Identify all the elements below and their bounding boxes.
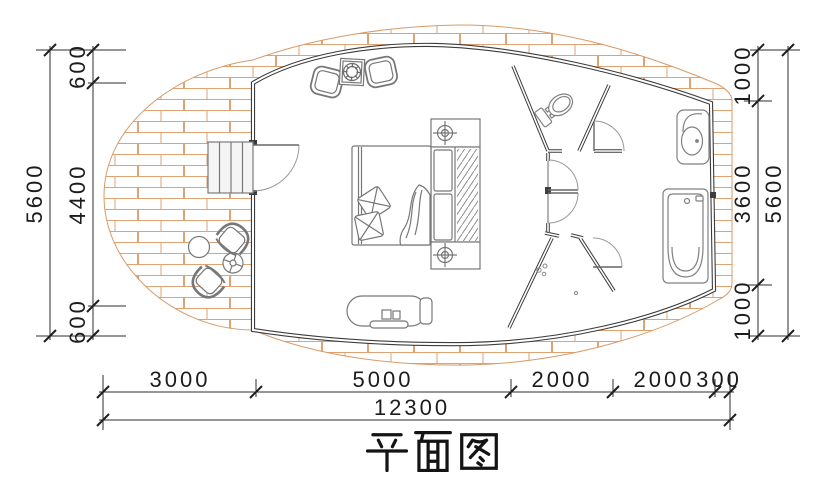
dim-bottom-seg-1: 5000 [353,367,414,392]
entry-steps [208,142,253,193]
dim-left-overall: 5600 [22,163,47,224]
title-glyph-ping [368,435,407,471]
dim-bottom-seg-0: 3000 [150,367,211,392]
dim-right-seg-2: 1000 [730,280,755,341]
bathtub [663,189,708,283]
floor-plan-page: 平面图 [0,0,837,496]
dim-left-seg-0: 600 [65,43,90,89]
dim-bottom-seg-3: 2000 [634,367,695,392]
wall-junction-block [710,192,716,198]
double-bed [352,146,431,245]
potted-plant [343,63,361,81]
dim-bottom-seg-4: 300 [696,367,742,392]
title-glyph-mian [416,433,451,471]
dim-right-seg-1: 3600 [730,163,755,224]
side-table [339,58,364,85]
wardrobe-nightstand-column [431,119,480,269]
dim-bottom-seg-2: 2000 [532,367,593,392]
plan-title [368,433,497,471]
dim-left-seg-1: 4400 [65,164,90,225]
hanger-rail-hatch [457,149,478,241]
dim-left-seg-2: 600 [65,298,90,344]
dim-right-seg-0: 1000 [730,45,755,106]
outdoor-round-table [189,237,210,258]
sink-vanity [677,110,709,164]
dim-bottom-overall: 12300 [374,395,450,420]
pillow-2 [354,211,384,241]
chaise-lounge [347,296,432,328]
title-glyph-tu [462,435,497,468]
floor-plan-canvas: 5600 600 4400 600 1000 3600 1000 5600 30… [0,0,837,496]
armchair-right [363,55,398,89]
dim-right-overall: 5600 [761,163,786,224]
